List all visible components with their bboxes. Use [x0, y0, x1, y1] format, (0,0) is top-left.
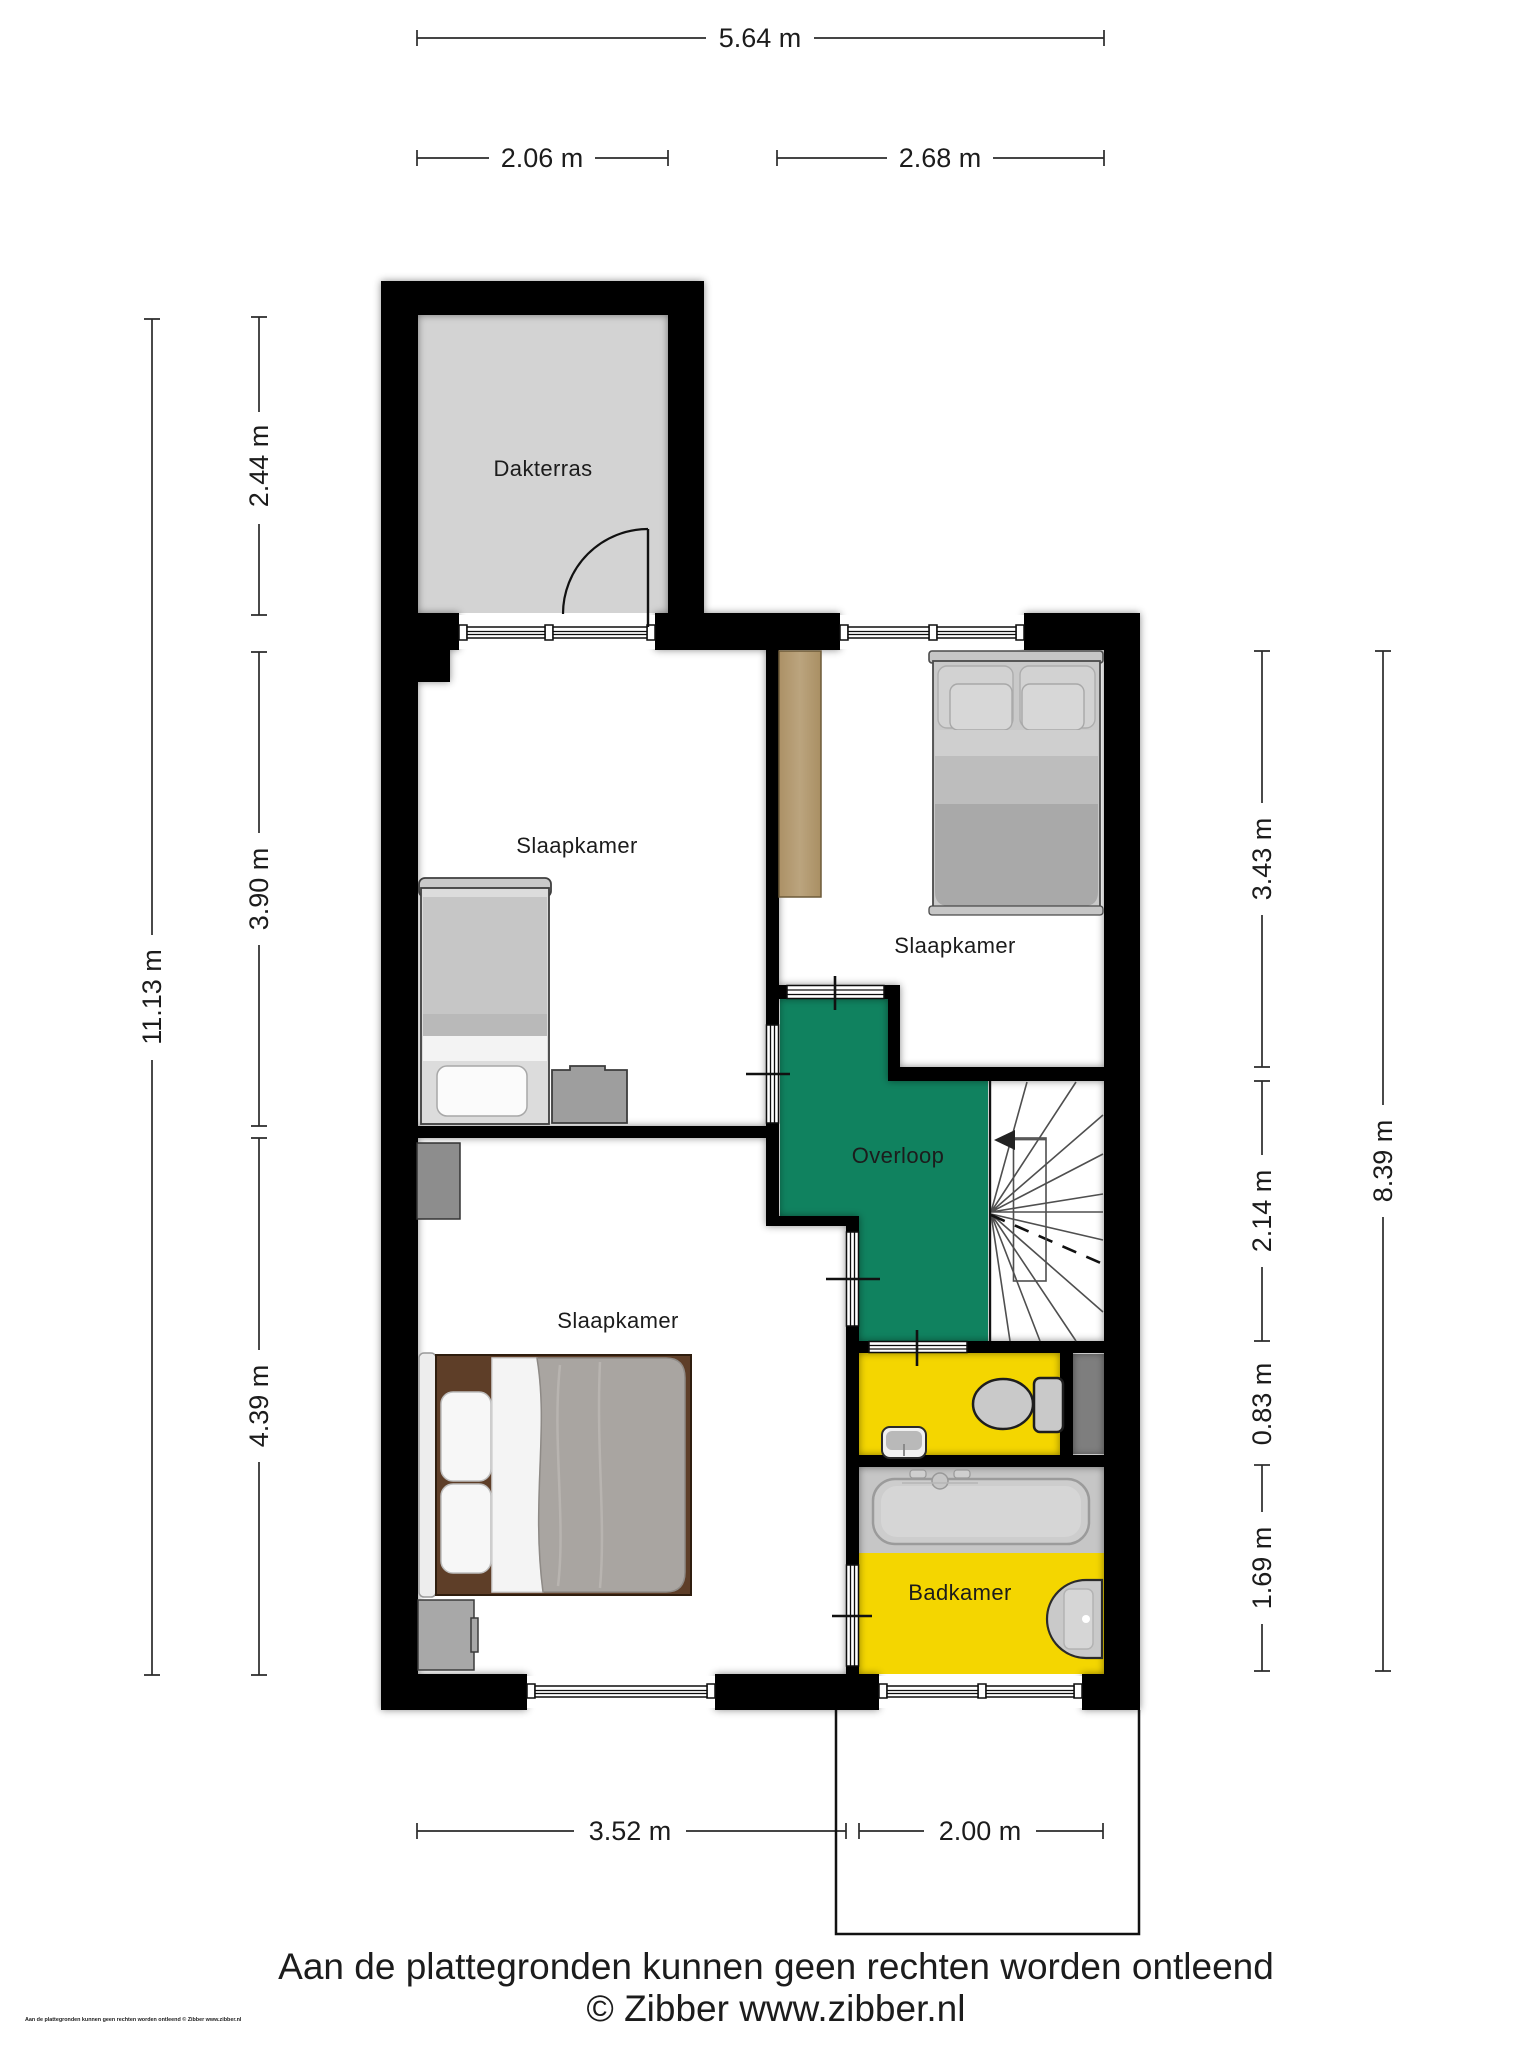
svg-text:2.00 m: 2.00 m [939, 1816, 1022, 1846]
svg-text:Badkamer: Badkamer [908, 1580, 1011, 1605]
svg-text:2.14 m: 2.14 m [1247, 1170, 1277, 1253]
svg-text:2.44 m: 2.44 m [244, 425, 274, 508]
svg-text:2.06 m: 2.06 m [501, 143, 584, 173]
svg-text:1.69 m: 1.69 m [1247, 1527, 1277, 1610]
svg-text:Aan de plattegronden kunnen ge: Aan de plattegronden kunnen geen rechten… [278, 1946, 1274, 1987]
svg-text:3.43 m: 3.43 m [1247, 818, 1277, 901]
svg-text:Dakterras: Dakterras [494, 456, 593, 481]
svg-text:3.90 m: 3.90 m [244, 848, 274, 931]
svg-text:© Zibber www.zibber.nl: © Zibber www.zibber.nl [587, 1988, 966, 2029]
svg-text:11.13 m: 11.13 m [137, 949, 167, 1045]
svg-text:0.83 m: 0.83 m [1247, 1363, 1277, 1446]
svg-text:Overloop: Overloop [852, 1143, 944, 1168]
svg-text:Slaapkamer: Slaapkamer [894, 933, 1015, 958]
svg-text:2.68 m: 2.68 m [899, 143, 982, 173]
svg-text:4.39 m: 4.39 m [244, 1365, 274, 1448]
svg-text:Aan de plattegronden kunnen ge: Aan de plattegronden kunnen geen rechten… [25, 2016, 242, 2023]
svg-text:3.52 m: 3.52 m [589, 1816, 672, 1846]
svg-text:Slaapkamer: Slaapkamer [516, 833, 637, 858]
svg-text:5.64 m: 5.64 m [719, 23, 802, 53]
svg-text:Slaapkamer: Slaapkamer [557, 1308, 678, 1333]
svg-text:8.39 m: 8.39 m [1368, 1120, 1398, 1203]
